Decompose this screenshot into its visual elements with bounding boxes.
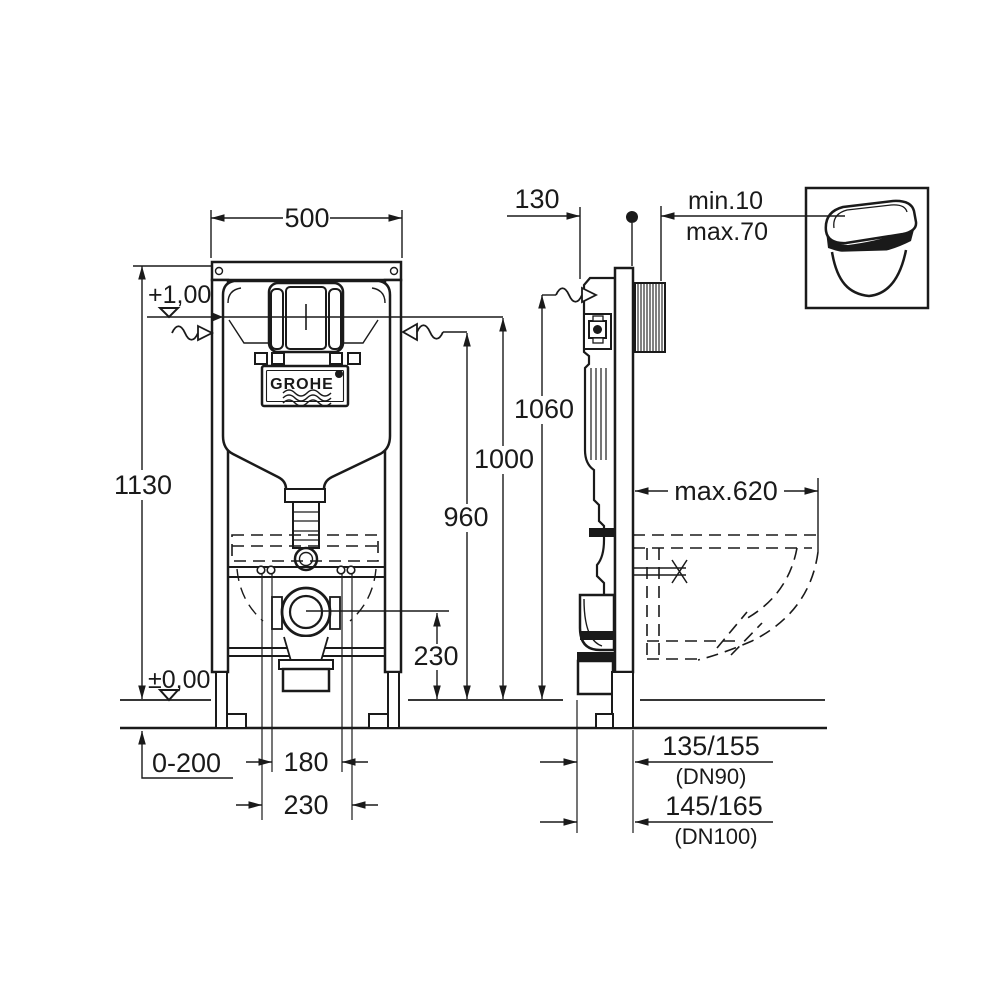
corner-screw-icon — [216, 268, 223, 275]
dim-front-height: 1130 — [114, 470, 172, 500]
dim-outlet-height: 230 — [413, 641, 458, 671]
flush-pipe — [293, 502, 319, 548]
label-level-top: +1,00 — [148, 281, 211, 309]
dim-spacing-outer: 230 — [283, 790, 328, 820]
dim-foot-range: 0-200 — [152, 748, 221, 778]
side-rail — [615, 268, 633, 672]
dim-dn100-offset: 145/165 — [665, 791, 763, 821]
flush-pipe-collar — [285, 489, 325, 502]
outlet-stub — [283, 669, 329, 691]
side-foot — [612, 672, 633, 728]
wall-plane-marker-icon — [626, 211, 638, 223]
right-foot-plate — [369, 714, 388, 728]
dim-bowl-projection: max.620 — [674, 476, 778, 506]
dim-dn90-offset: 135/155 — [662, 731, 760, 761]
squiggle-arrow-icon — [417, 325, 443, 339]
fixing-screw-icon — [337, 566, 345, 574]
dim-front-width: 500 — [284, 203, 329, 233]
corner-screw-icon — [391, 268, 398, 275]
brand-label: GROHE — [262, 366, 348, 406]
fixing-screw-icon — [347, 566, 355, 574]
right-foot-tube — [388, 672, 399, 728]
label-dn90: (DN90) — [676, 764, 747, 789]
fixing-rod — [633, 560, 687, 583]
datum-triangle-icon — [160, 308, 178, 317]
drain-elbow — [580, 595, 614, 650]
left-foot-tube — [216, 672, 227, 728]
dim-side-depth: 130 — [514, 184, 559, 214]
toilet-bowl-dashed-outline — [633, 535, 818, 660]
squiggle-arrow-icon — [172, 326, 198, 340]
wall-anchor-block — [635, 283, 665, 352]
outlet-pipe — [578, 661, 613, 694]
toilet-icon — [806, 188, 928, 308]
installation-dimension-drawing: GROHE — [0, 0, 1000, 1000]
datum-triangle-icon — [160, 690, 178, 700]
label-dn100: (DN100) — [674, 824, 757, 849]
fixing-screw-icon — [267, 566, 275, 574]
left-foot-plate — [227, 714, 246, 728]
dim-flush-plate-height: 1000 — [474, 444, 534, 474]
dim-supply-height: 960 — [443, 502, 488, 532]
technical-drawing-page: GROHE — [0, 0, 1000, 1000]
registered-mark-icon — [335, 370, 343, 378]
dim-wall-min: min.10 — [688, 187, 763, 215]
dim-wall-max: max.70 — [686, 218, 768, 246]
brand-text: GROHE — [270, 376, 334, 393]
dim-spacing-inner: 180 — [283, 747, 328, 777]
fixing-screw-icon — [257, 566, 265, 574]
squiggle-arrow-icon — [556, 288, 582, 302]
dim-frame-top-height: 1060 — [514, 394, 574, 424]
